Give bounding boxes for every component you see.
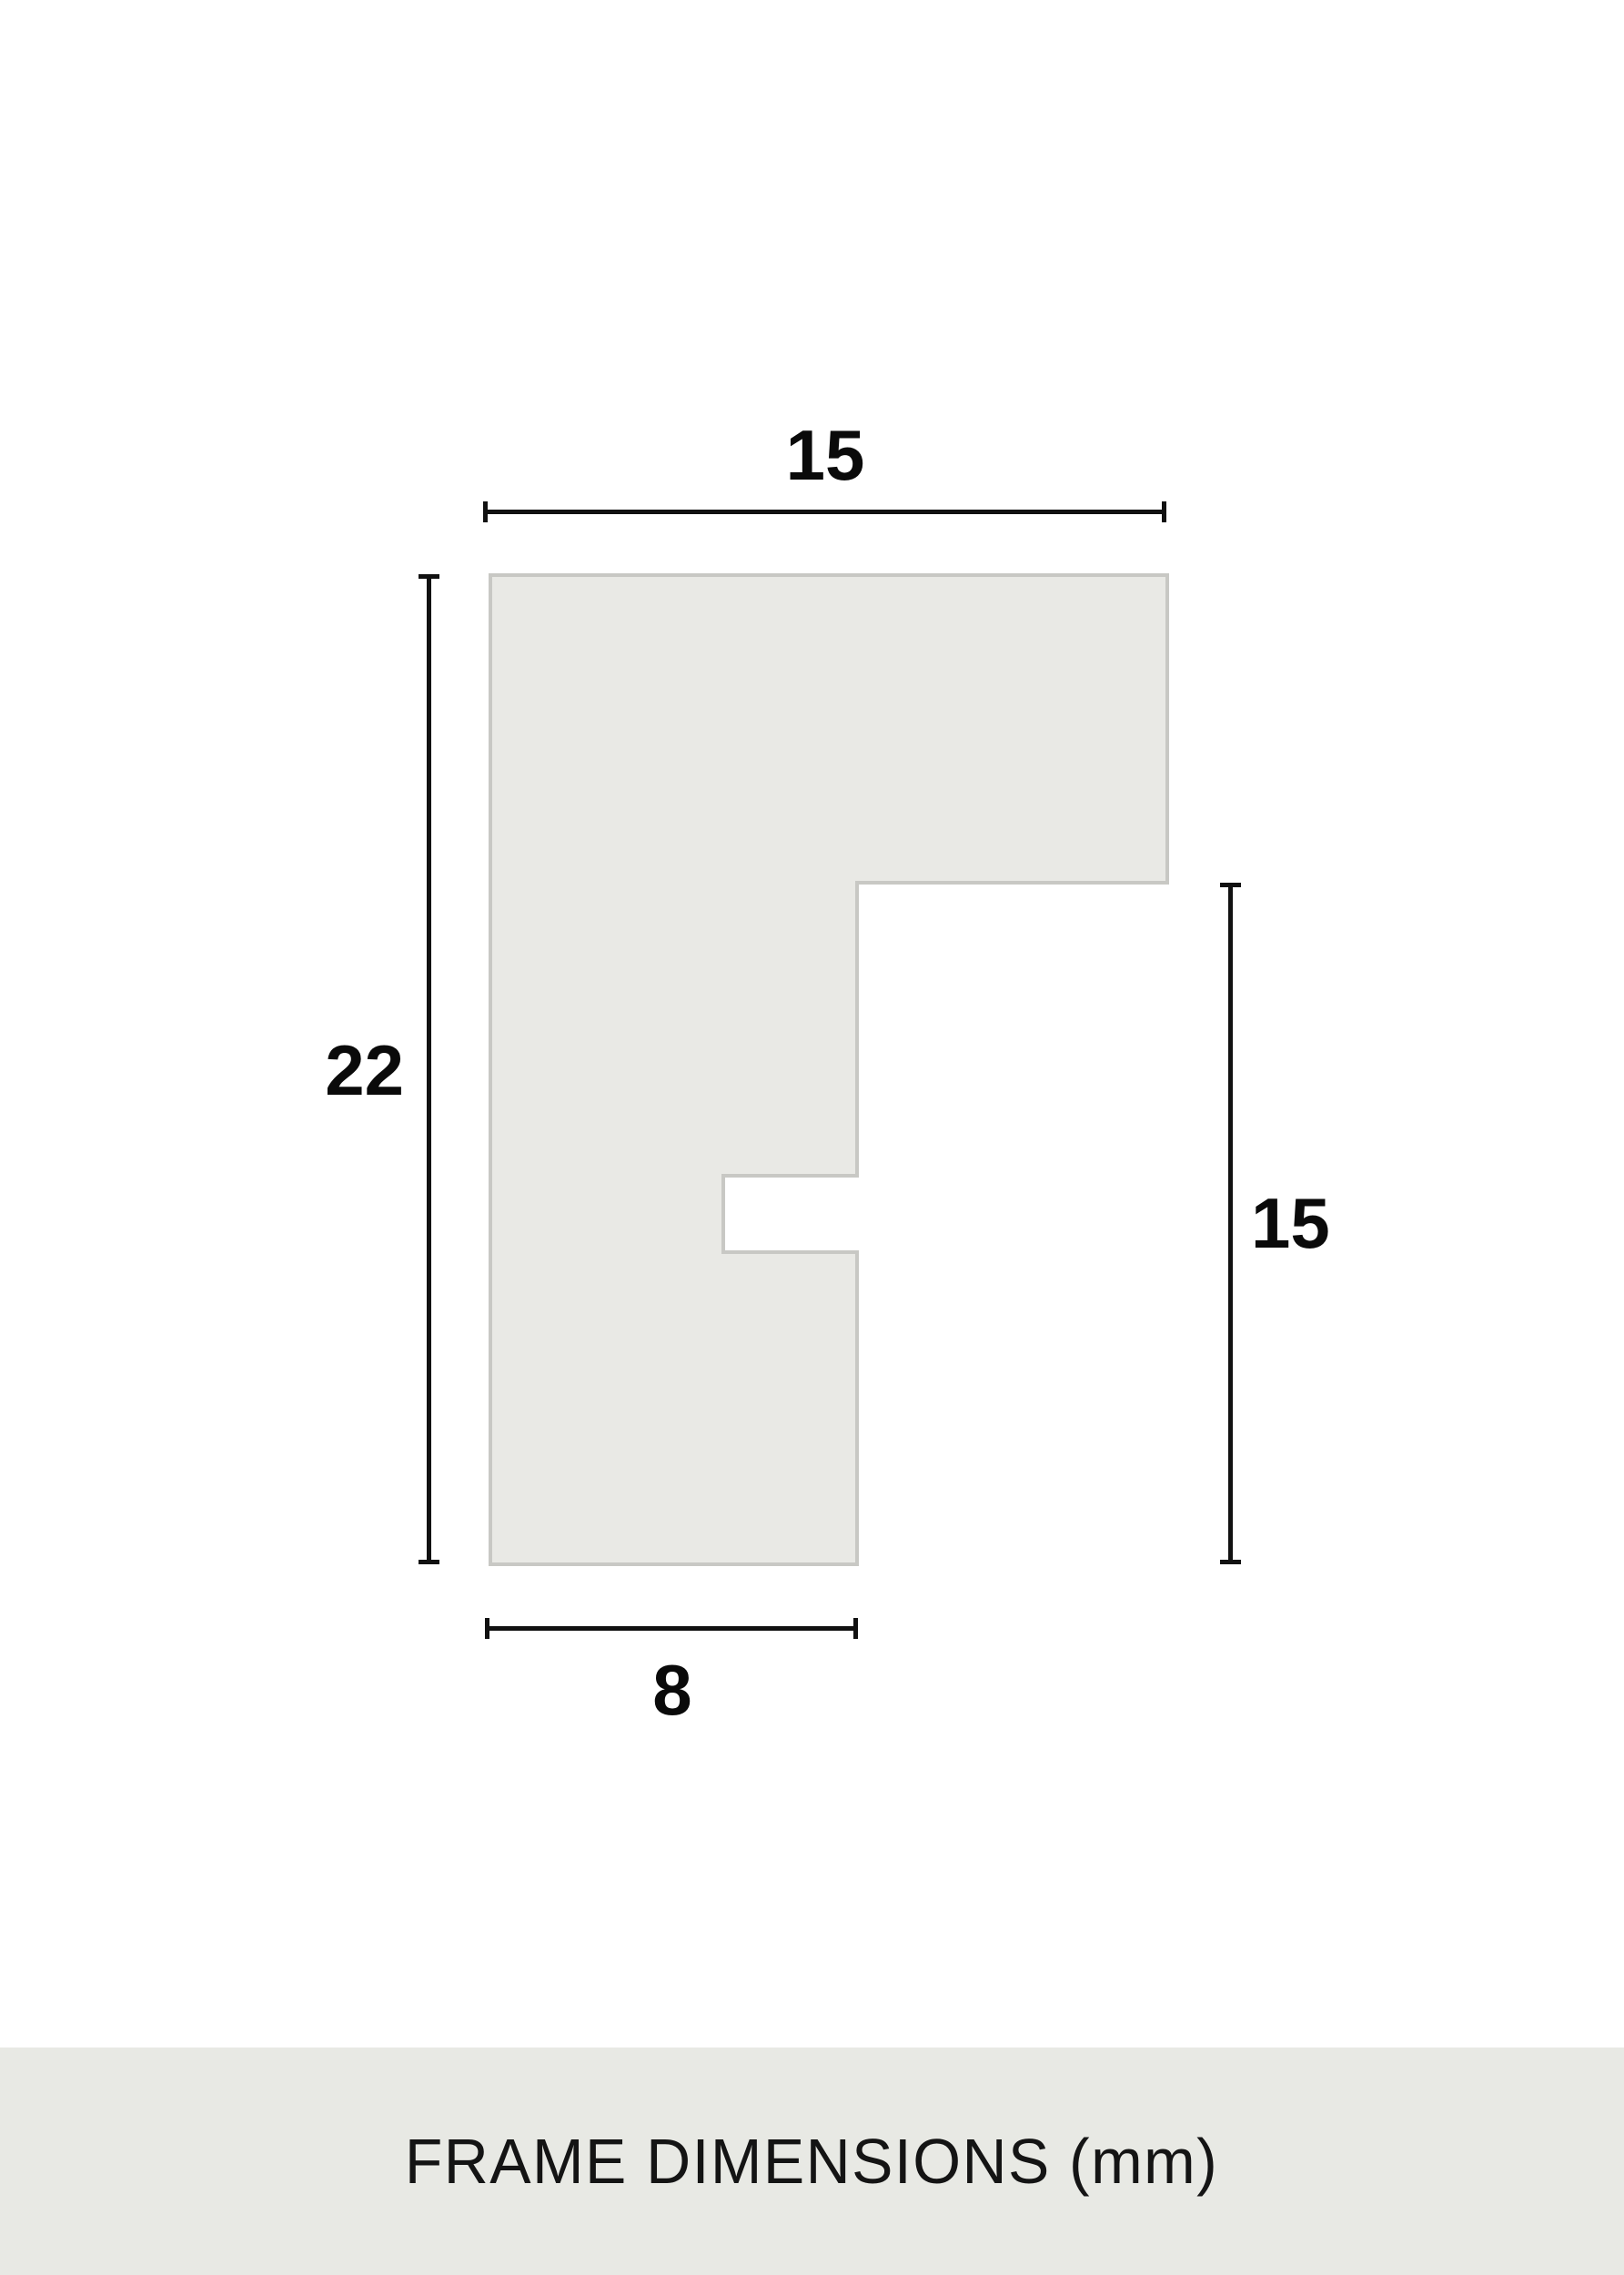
top-dimension-line	[485, 510, 1165, 514]
frame-profile-shape	[0, 0, 1624, 2275]
left-dimension-bottom-tick	[419, 1560, 439, 1564]
bottom-width-label: 8	[487, 1654, 858, 1725]
right-dimension-bottom-tick	[1220, 1560, 1241, 1564]
left-dimension-top-tick	[419, 574, 439, 579]
left-dimension-line	[427, 576, 431, 1562]
right-dimension-top-tick	[1220, 883, 1241, 887]
footer-caption-band: FRAME DIMENSIONS (mm)	[0, 2047, 1624, 2275]
right-dimension-line	[1228, 885, 1233, 1562]
top-dimension-left-tick	[483, 501, 488, 522]
frame-dimensions-diagram: 15 22 15 8 FRAME DIMENSIONS (mm)	[0, 0, 1624, 2275]
right-height-label: 15	[1251, 1188, 1330, 1259]
bottom-dimension-line	[487, 1626, 858, 1631]
top-width-label: 15	[485, 420, 1165, 490]
bottom-dimension-right-tick	[853, 1618, 858, 1639]
top-dimension-right-tick	[1162, 501, 1166, 522]
footer-caption-text: FRAME DIMENSIONS (mm)	[405, 2129, 1218, 2193]
bottom-dimension-left-tick	[485, 1618, 489, 1639]
left-height-label: 22	[325, 1035, 404, 1106]
